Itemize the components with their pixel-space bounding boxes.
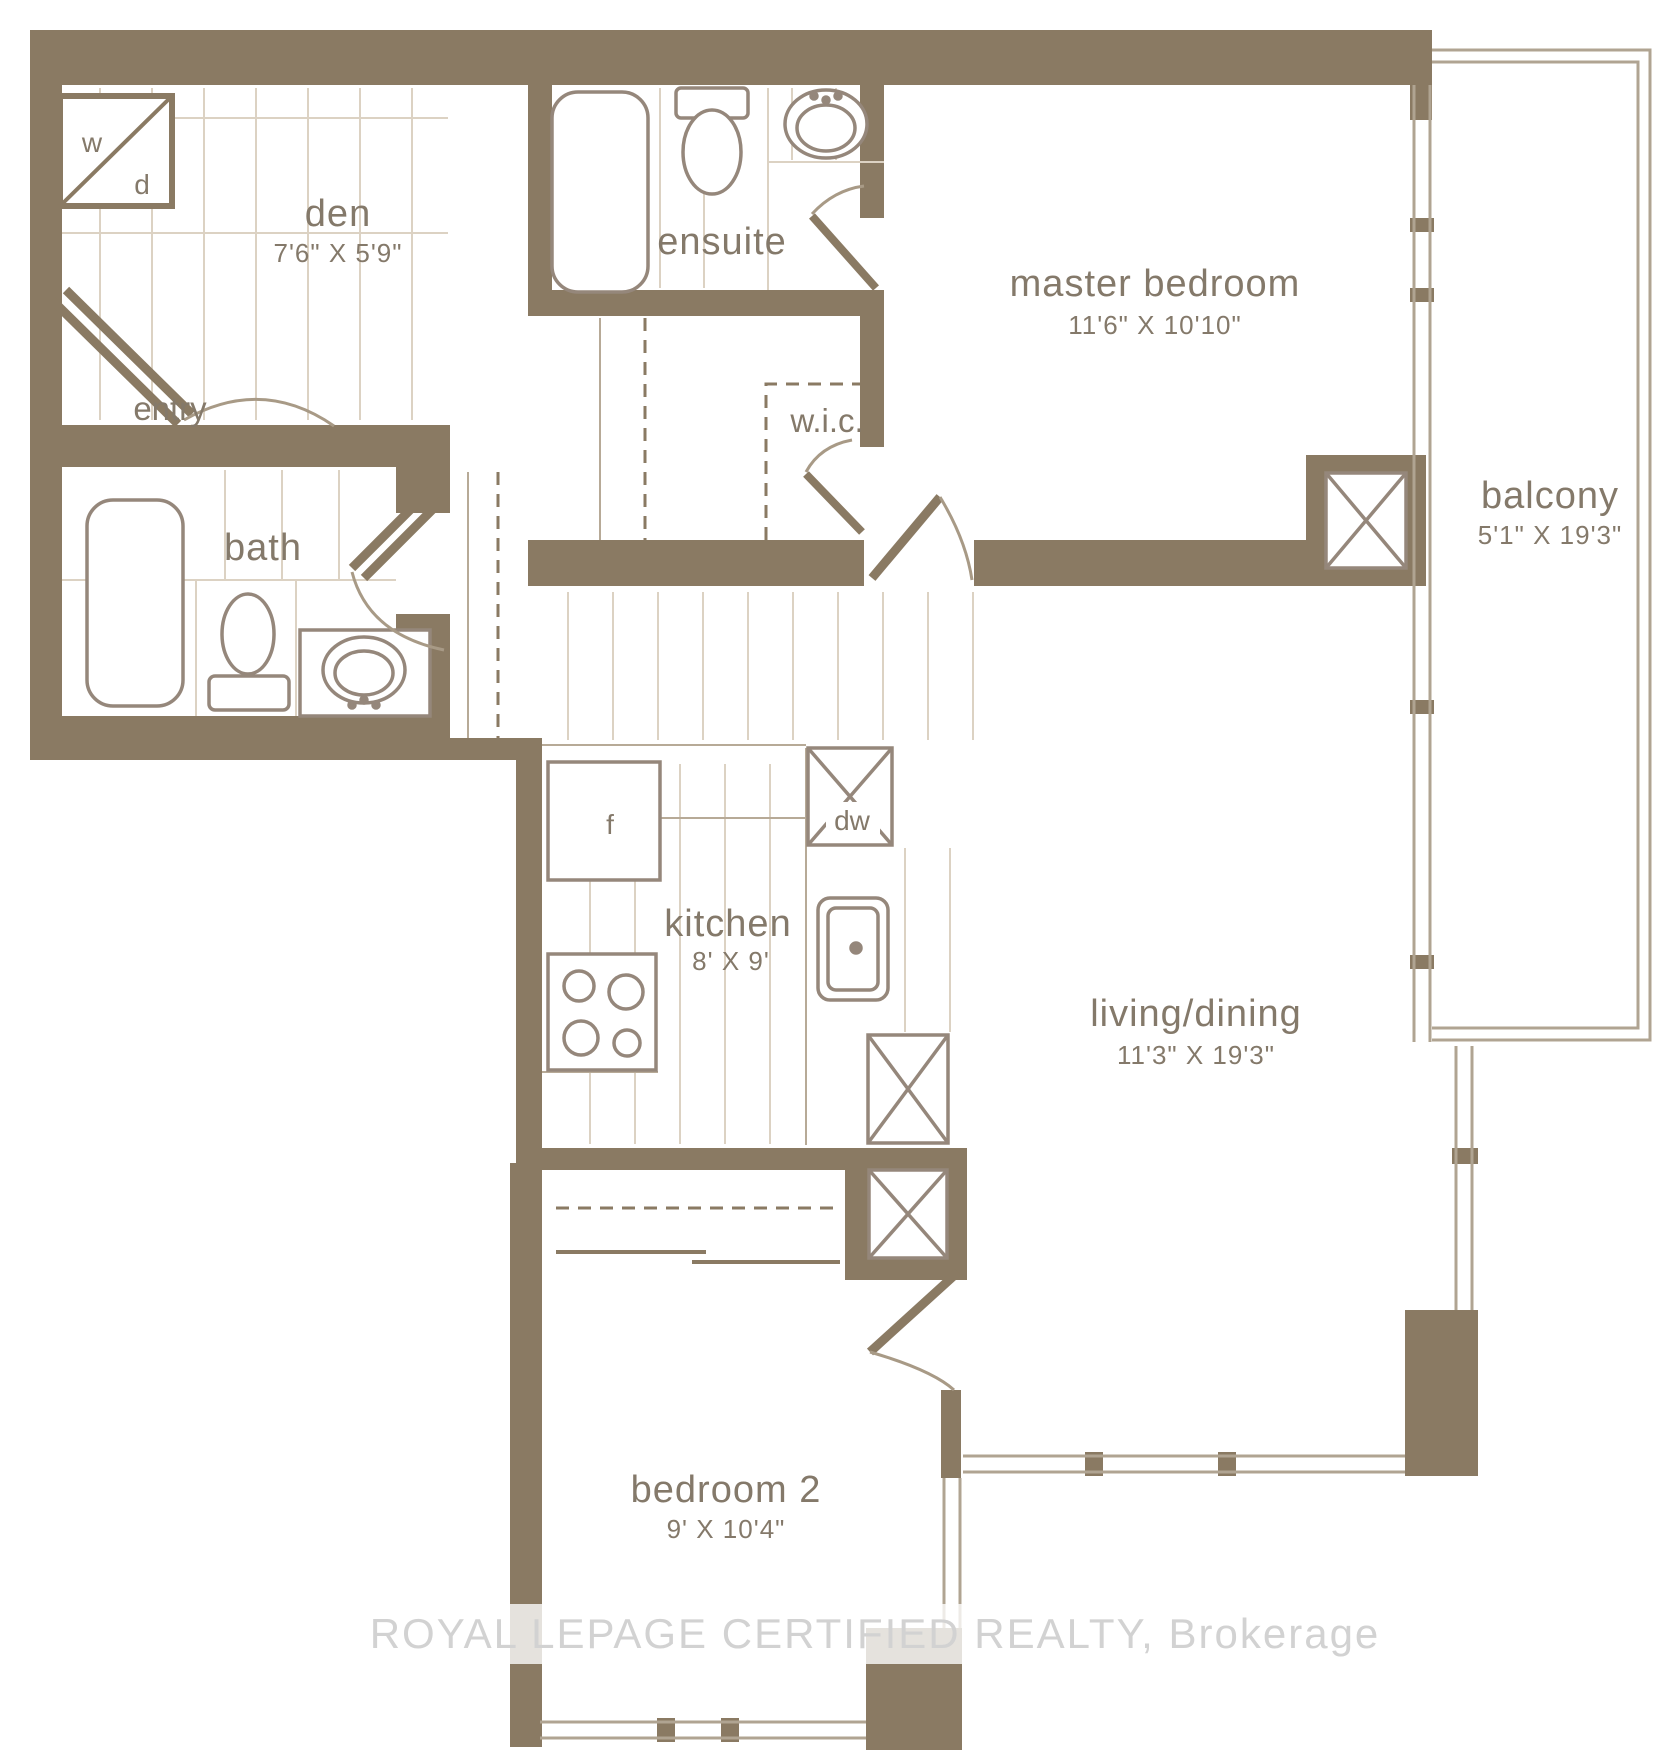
bath-bathtub-icon [87,500,183,706]
bath-toilet-icon [209,594,289,710]
column-x-icon [1326,473,1406,568]
ensuite-bathtub-icon [552,92,648,292]
wic-door-leaf [806,474,862,532]
ensuite-toilet-icon [676,88,748,194]
stove-icon [548,954,656,1070]
watermark-text: ROYAL LEPAGE CERTIFIED REALTY, Brokerage [370,1610,1381,1657]
ensuite-sink-icon [785,90,867,158]
master-door-leaf [872,497,940,578]
watermark: ROYAL LEPAGE CERTIFIED REALTY, Brokerage [370,1604,1381,1664]
cabinet-x-icon [868,1035,948,1143]
entry-label: entry [133,390,207,427]
bedroom2-dims: 9' X 10'4" [667,1514,786,1544]
washer-dryer-icon [60,96,172,206]
living-dining-label: living/dining [1090,993,1302,1035]
floor-plan: den 7'6" X 5'9" entry bath ensuite w.i.c… [0,0,1680,1754]
fridge-icon [548,762,660,880]
column-x-icon [869,1170,947,1258]
living-dining-dims: 11'3" X 19'3" [1117,1040,1275,1070]
master-door-arc [940,497,972,580]
wic-door-arc [806,440,852,472]
ensuite-label: ensuite [657,221,787,263]
balcony-dims: 5'1" X 19'3" [1478,520,1622,550]
bath-sink-icon [300,630,430,716]
balcony-label: balcony [1481,475,1619,517]
ensuite-door-arc [812,186,864,214]
kitchen-dims: 8' X 9' [692,946,770,976]
den-dims: 7'6" X 5'9" [273,238,402,268]
fridge-label: f [606,809,614,840]
bedroom2-label: bedroom 2 [631,1469,822,1511]
master-bedroom-dims: 11'6" X 10'10" [1068,310,1241,340]
sliding-closet-doors [556,1252,840,1262]
kitchen-sink-icon [818,898,888,1000]
bedroom2-door-arc [870,1352,954,1390]
dishwasher-label: dw [834,805,871,836]
den-label: den [305,193,371,235]
dryer-label: d [134,169,150,200]
washer-label: w [81,127,103,158]
kitchen-label: kitchen [664,903,791,945]
labels-layer: den 7'6" X 5'9" entry bath ensuite w.i.c… [81,127,1622,1544]
bath-label: bath [224,527,302,569]
bedroom2-door-leaf [870,1272,958,1352]
wic-label: w.i.c. [789,402,863,439]
ensuite-door-leaf [812,216,876,288]
master-bedroom-label: master bedroom [1010,263,1301,305]
